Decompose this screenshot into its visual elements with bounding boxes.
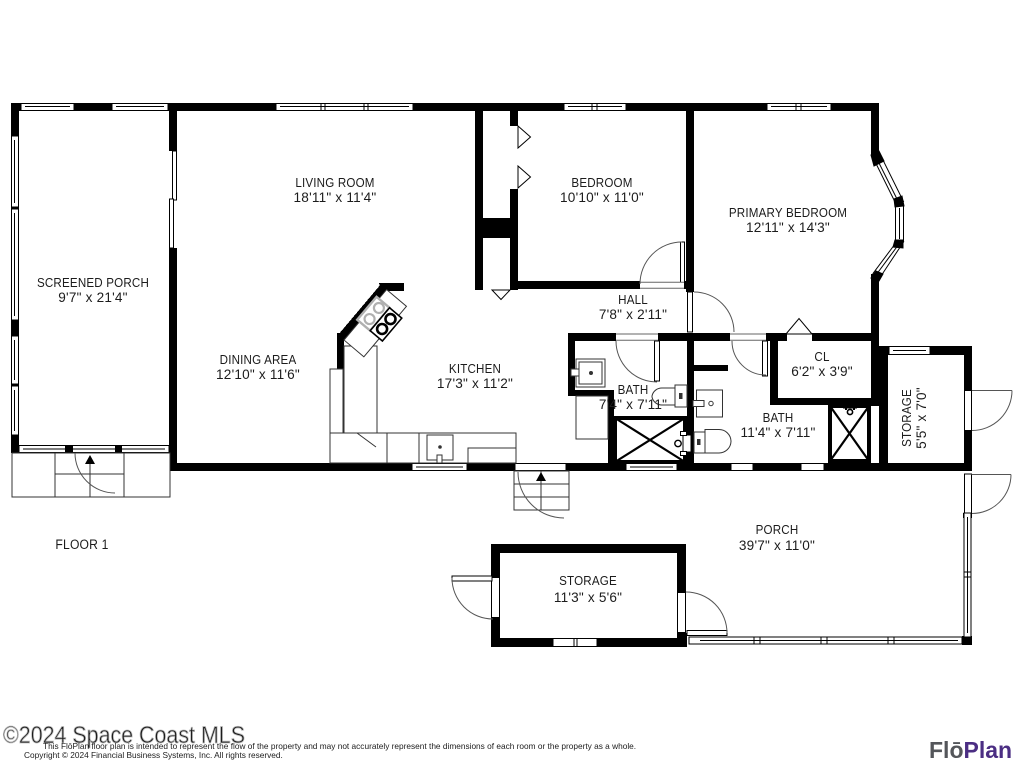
svg-text:KITCHEN: KITCHEN bbox=[449, 361, 501, 376]
svg-text:17'3" x 11'2": 17'3" x 11'2" bbox=[437, 376, 513, 391]
svg-text:12'10" x 11'6": 12'10" x 11'6" bbox=[216, 367, 300, 382]
svg-text:STORAGE: STORAGE bbox=[899, 389, 914, 447]
svg-text:7'4" x 7'11": 7'4" x 7'11" bbox=[599, 397, 667, 412]
svg-text:BEDROOM: BEDROOM bbox=[571, 175, 632, 190]
svg-text:BATH: BATH bbox=[763, 410, 794, 425]
svg-text:10'10" x 11'0": 10'10" x 11'0" bbox=[560, 190, 644, 205]
svg-text:39'7" x 11'0": 39'7" x 11'0" bbox=[739, 538, 815, 553]
svg-text:6'2" x 3'9": 6'2" x 3'9" bbox=[791, 364, 853, 379]
svg-text:PRIMARY BEDROOM: PRIMARY BEDROOM bbox=[729, 205, 847, 220]
svg-text:18'11" x 11'4": 18'11" x 11'4" bbox=[294, 190, 377, 205]
svg-text:LIVING ROOM: LIVING ROOM bbox=[295, 175, 374, 190]
svg-text:Copyright © 2024 Financial Bus: Copyright © 2024 Financial Business Syst… bbox=[24, 750, 283, 760]
svg-text:11'4" x 7'11": 11'4" x 7'11" bbox=[740, 425, 815, 440]
svg-text:SCREENED PORCH: SCREENED PORCH bbox=[37, 275, 149, 290]
svg-text:9'7" x 21'4": 9'7" x 21'4" bbox=[58, 290, 127, 305]
svg-text:FlōPlan: FlōPlan bbox=[929, 737, 1012, 763]
svg-text:DINING AREA: DINING AREA bbox=[220, 352, 297, 367]
svg-text:11'3" x 5'6": 11'3" x 5'6" bbox=[554, 590, 622, 605]
svg-text:5'5" x 7'0": 5'5" x 7'0" bbox=[914, 387, 929, 449]
svg-text:FLOOR 1: FLOOR 1 bbox=[55, 536, 108, 552]
svg-text:STORAGE: STORAGE bbox=[559, 573, 617, 588]
svg-text:HALL: HALL bbox=[618, 292, 648, 307]
svg-text:CL: CL bbox=[814, 349, 829, 364]
svg-text:12'11" x 14'3": 12'11" x 14'3" bbox=[746, 220, 830, 235]
svg-text:PORCH: PORCH bbox=[756, 522, 799, 537]
svg-text:7'8" x 2'11": 7'8" x 2'11" bbox=[599, 307, 667, 322]
svg-text:BATH: BATH bbox=[618, 382, 649, 397]
